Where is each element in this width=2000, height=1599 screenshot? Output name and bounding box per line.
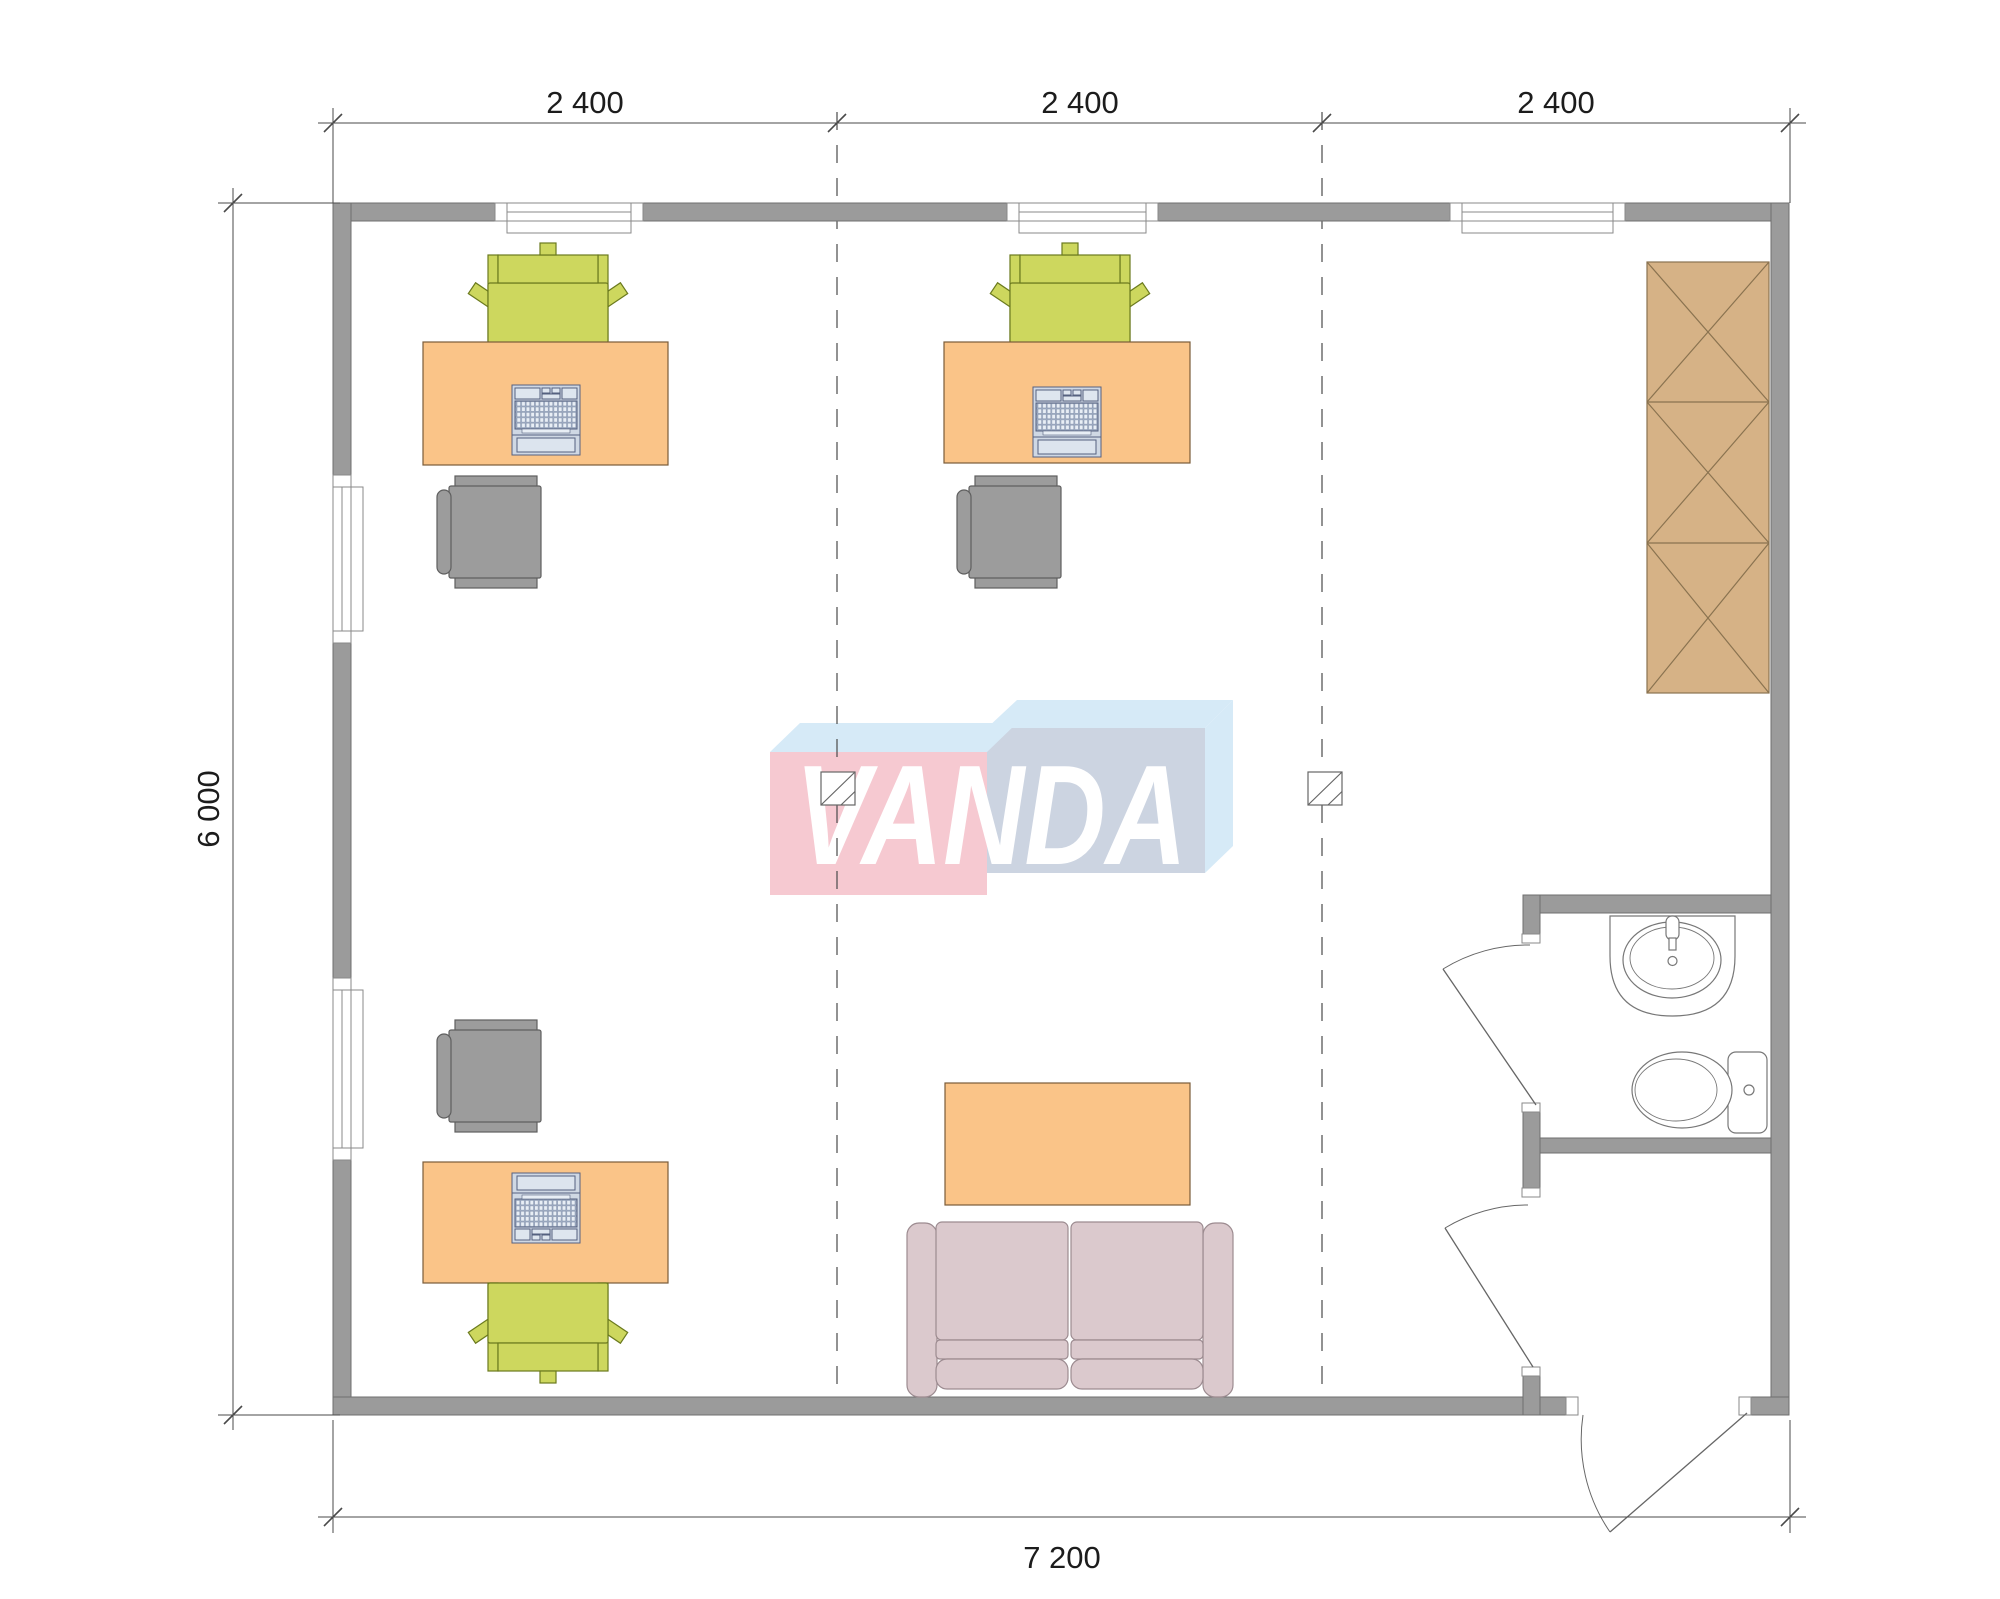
- sofa: [907, 1222, 1233, 1397]
- coffee-table: [945, 1083, 1190, 1205]
- window-left-1: [333, 475, 363, 643]
- dimension-label-bottom: 7 200: [1023, 1540, 1101, 1575]
- window-top-2: [1007, 203, 1158, 233]
- office-chair-2: [990, 243, 1149, 343]
- wall-bottom-right-segment: [1751, 1397, 1789, 1415]
- sink: [1610, 916, 1735, 1016]
- dimension-label-top-3: 2 400: [1517, 85, 1595, 120]
- floor-plan: VANDA: [0, 0, 2000, 1599]
- dimension-label-left: 6 000: [191, 770, 226, 848]
- sofa-armrest-right: [1203, 1223, 1233, 1397]
- sink-faucet: [1669, 938, 1676, 950]
- workstation-1: [423, 243, 668, 588]
- toilet: [1632, 1052, 1767, 1133]
- watermark-box-right-top: [987, 700, 1233, 728]
- wall-partition-segment: [1523, 895, 1540, 935]
- floor-plan-drawing: VANDA: [0, 0, 2000, 1599]
- doors: [1443, 945, 1747, 1532]
- wall-partition-segment: [1523, 1376, 1540, 1415]
- wardrobe: [1647, 262, 1769, 693]
- dimension-label-top-2: 2 400: [1041, 85, 1119, 120]
- dimension-label-top-1: 2 400: [546, 85, 624, 120]
- sofa-seat: [1071, 1340, 1203, 1359]
- column-1: [821, 772, 855, 805]
- visitor-chair-2: [957, 476, 1061, 588]
- door-hall: [1445, 1205, 1533, 1367]
- window-top-1: [495, 203, 643, 233]
- window-sill: [507, 221, 631, 233]
- laptop-1: [512, 385, 580, 455]
- wall-partition-segment: [1523, 1112, 1540, 1188]
- sofa-seat: [936, 1340, 1068, 1359]
- sofa-armrest-left: [907, 1223, 937, 1397]
- office-chair-1: [468, 243, 627, 343]
- toilet-flush-button: [1744, 1085, 1754, 1095]
- window-sill: [1462, 221, 1613, 233]
- sofa-seat-cushion: [1071, 1359, 1203, 1389]
- wall-bottom-left-segment: [333, 1397, 1566, 1415]
- window-top-3: [1450, 203, 1625, 233]
- door-entrance: [1581, 1413, 1747, 1532]
- window-sill: [351, 487, 363, 631]
- watermark-box-right-side: [1205, 700, 1233, 873]
- window-sill: [1019, 221, 1146, 233]
- workstation-3: [423, 1020, 668, 1383]
- sofa-seat-cushion: [936, 1359, 1068, 1389]
- laptop-3: [512, 1173, 580, 1243]
- column-2: [1308, 772, 1342, 805]
- office-chair-3: [468, 1283, 627, 1383]
- visitor-chair-1: [437, 476, 541, 588]
- window-sill: [351, 990, 363, 1148]
- workstation-2: [944, 243, 1190, 588]
- wall-right: [1771, 203, 1789, 1415]
- laptop-2: [1033, 387, 1101, 457]
- sofa-back-cushion: [936, 1222, 1068, 1340]
- wall-left: [333, 203, 351, 1415]
- door-bathroom: [1443, 945, 1536, 1105]
- window-left-2: [333, 978, 363, 1160]
- wall-bathroom-middle: [1538, 1138, 1771, 1153]
- visitor-chair-3: [437, 1020, 541, 1132]
- sofa-back-cushion: [1071, 1222, 1203, 1340]
- watermark-text: VANDA: [795, 736, 1187, 895]
- sink-faucet: [1666, 916, 1679, 940]
- wall-bathroom-top: [1523, 895, 1771, 913]
- sink-drain: [1668, 957, 1677, 966]
